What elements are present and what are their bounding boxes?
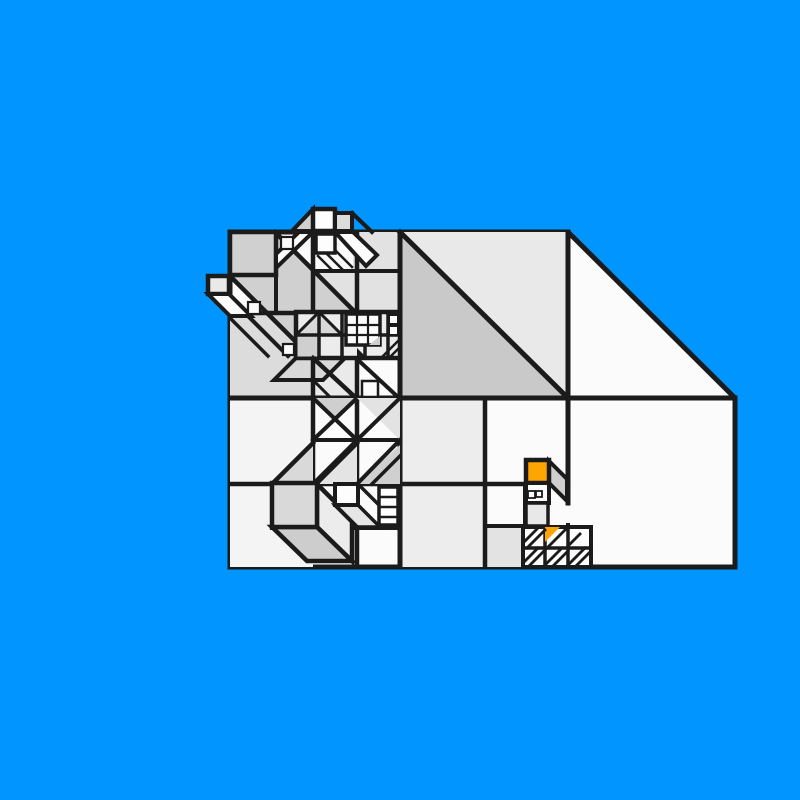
artwork-svg	[0, 0, 800, 800]
orange-cube-tiny-2	[536, 491, 542, 497]
fractal-square-3	[283, 344, 294, 355]
orange-cube-tiny-1	[528, 491, 535, 498]
orange-cube-gray-cell	[526, 503, 548, 526]
fractal-square-2	[248, 302, 260, 314]
orange-cube-face	[526, 460, 549, 483]
beam-subsquare	[316, 234, 335, 253]
topcube-side	[335, 213, 352, 231]
tl-corner-square	[230, 232, 276, 275]
staircase-front-face	[272, 483, 317, 527]
topcube-face	[313, 209, 335, 231]
minigrid-right-sq-1	[389, 315, 398, 324]
cell-col-b	[357, 271, 400, 313]
minigrid-right-sq-2	[389, 326, 398, 335]
generative-artwork-canvas	[0, 0, 800, 800]
central-small-square	[362, 381, 378, 397]
passage-cube-face	[335, 484, 358, 505]
minigrid-dark-cell	[296, 335, 319, 358]
fractal-square-1	[281, 237, 293, 249]
cell-gray-bottom-small	[485, 525, 525, 567]
protrusion-box	[208, 276, 229, 294]
